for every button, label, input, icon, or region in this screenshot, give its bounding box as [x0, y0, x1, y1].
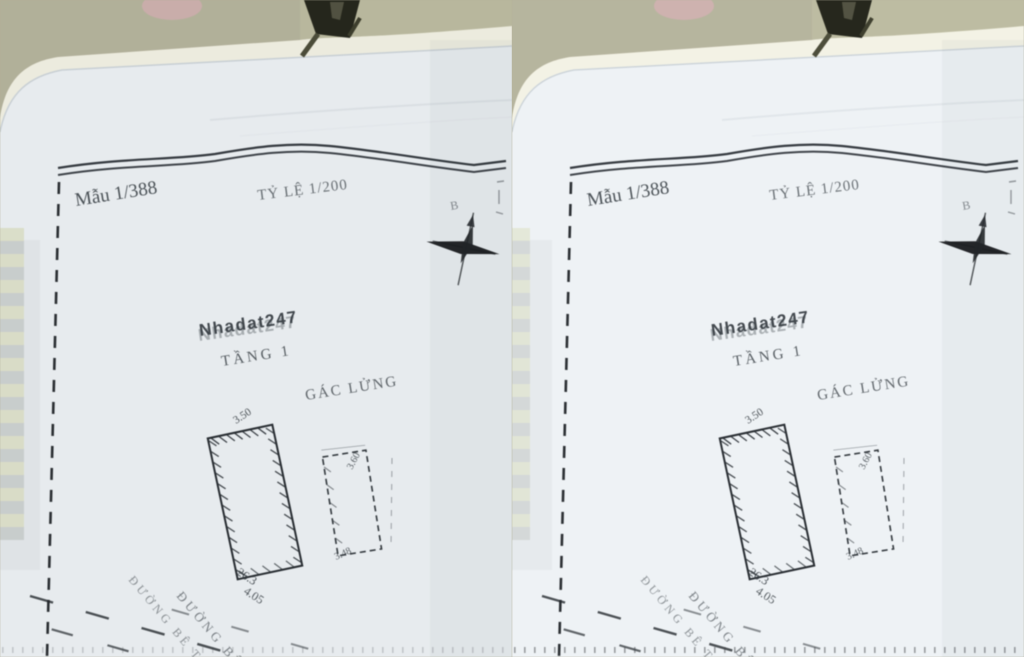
photo-page-left: Mẫu 1/388 TỶ LỆ 1/200 B Nhadat247 Nhadat…	[0, 0, 512, 657]
photo-page-right: Mẫu 1/388 TỶ LỆ 1/200 B Nhadat247 Nhadat…	[512, 0, 1024, 657]
shadow-right	[430, 40, 512, 657]
shadow-right	[942, 40, 1024, 657]
edge-stripes	[512, 228, 530, 540]
edge-stripes	[0, 228, 24, 540]
photo-collage: Mẫu 1/388 TỶ LỆ 1/200 B Nhadat247 Nhadat…	[0, 0, 1024, 657]
